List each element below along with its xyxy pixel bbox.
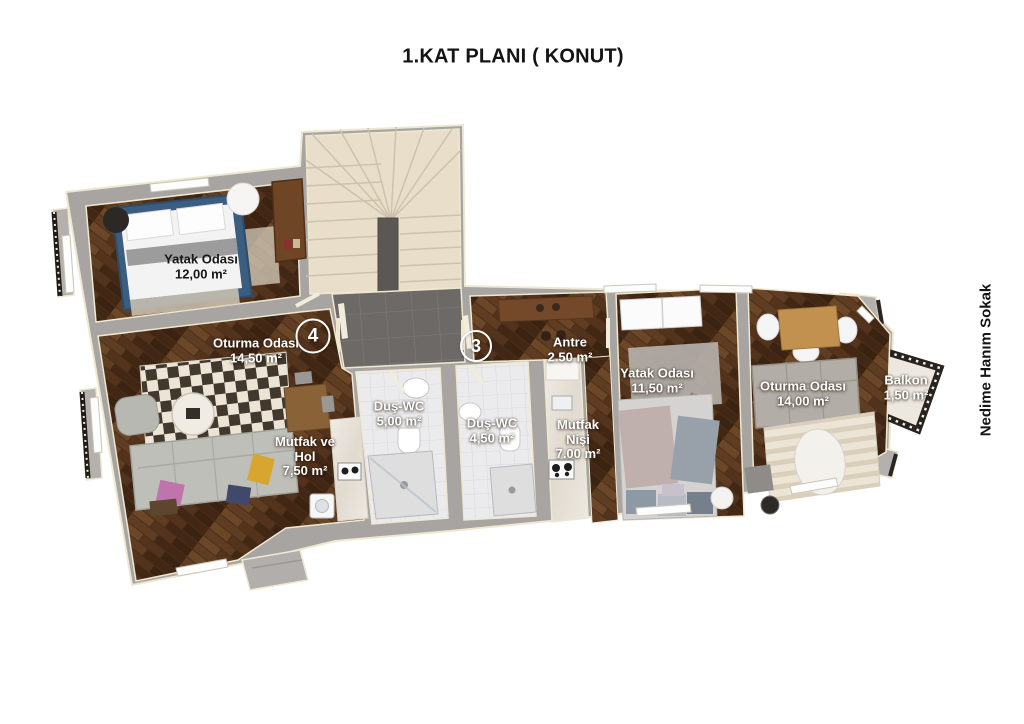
- room-label-dus-wc-1: Duş-WC 5,00 m²: [358, 399, 440, 428]
- unit-number-text: 4: [308, 325, 319, 347]
- round-side-table-white: [227, 183, 259, 215]
- room-label-yatak-odasi-2: Yatak Odası 11,50 m²: [611, 366, 703, 395]
- room-label-yatak-odasi-1: Yatak Odası 12,00 m²: [155, 252, 247, 281]
- pillow-navy: [226, 485, 251, 506]
- stair-landing: [332, 288, 465, 368]
- shower: [490, 464, 536, 516]
- side-table: [744, 464, 773, 493]
- wardrobe: [620, 296, 702, 330]
- counter-top: [546, 362, 579, 380]
- stool: [711, 487, 733, 509]
- room-label-antre: Antre 2.50 m²: [530, 335, 610, 364]
- armchair: [113, 393, 160, 437]
- room-label-dus-wc-2: Duş-WC 4,50 m²: [451, 416, 533, 445]
- room-label-mutfak-ve-hol: Mutfak ve Hol 7,50 m²: [272, 435, 338, 479]
- room-label-oturma-odasi-2: Oturma Odası 14,00 m²: [753, 379, 853, 408]
- shower: [368, 451, 438, 519]
- pillow-brown: [149, 499, 177, 517]
- double-bed-unmade: [618, 394, 720, 520]
- floor-plan-page: ♥: [0, 0, 1024, 724]
- round-decor: [761, 496, 779, 514]
- street-name-label: Nedime Hanım Sokak: [978, 284, 995, 437]
- room-label-mutfak-nisi: Mutfak Nişi 7.00 m²: [549, 418, 607, 462]
- room-label-balkon: Balkon 1,50 m²: [871, 373, 941, 402]
- room-yatak-odasi-2: ♥: [616, 288, 744, 520]
- unit-number-text: 3: [471, 336, 481, 357]
- dresser: [272, 179, 306, 262]
- washing-machine: [310, 494, 334, 518]
- staircase: [306, 127, 461, 294]
- unit-number-badge-3: 3: [460, 330, 492, 362]
- room-dus-wc-1: [356, 368, 448, 524]
- page-title: 1.KAT PLANI ( KONUT): [402, 46, 623, 69]
- console-table: [498, 296, 594, 322]
- sink: [403, 378, 429, 398]
- coffee-table: [172, 393, 214, 435]
- floor-plan-drawing: ♥: [0, 0, 1024, 724]
- kitchen-sink: [552, 396, 572, 410]
- cooktop: [549, 460, 574, 479]
- round-side-table-dark: [103, 207, 129, 233]
- pillow: [662, 484, 684, 496]
- room-label-oturma-odasi-1: Oturma Odası 14,50 m²: [206, 336, 306, 365]
